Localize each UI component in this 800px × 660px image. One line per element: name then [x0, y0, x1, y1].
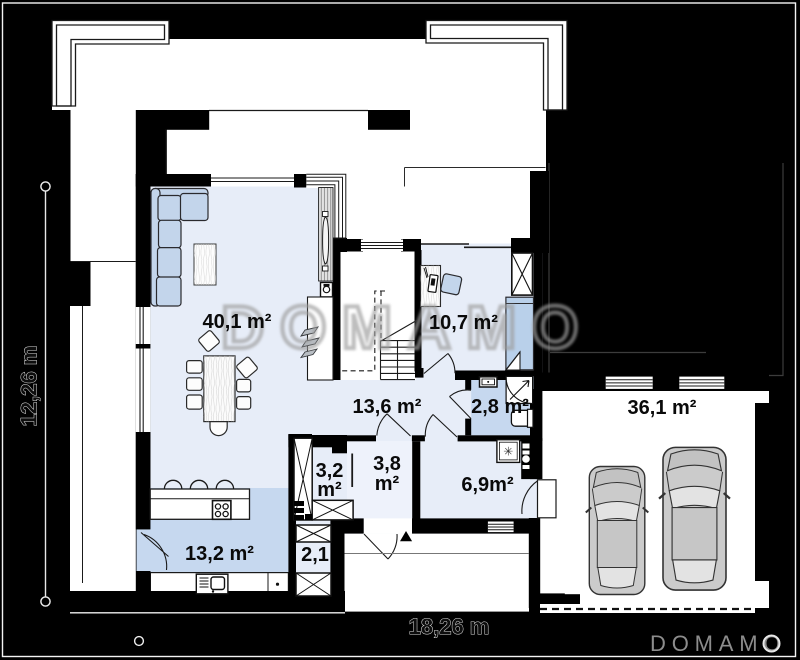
- svg-text:2,1: 2,1: [301, 544, 329, 566]
- svg-text:10,7 m²: 10,7 m²: [429, 312, 498, 334]
- svg-text:36,1 m²: 36,1 m²: [628, 397, 697, 419]
- svg-text:m²: m²: [317, 479, 342, 501]
- svg-text:✳: ✳: [503, 445, 513, 459]
- svg-text:18,26 m: 18,26 m: [409, 614, 490, 639]
- svg-text:3,8: 3,8: [373, 453, 401, 475]
- svg-text:6,9m²: 6,9m²: [461, 474, 514, 496]
- svg-text:DOMAMO: DOMAMO: [221, 294, 594, 361]
- svg-text:40,1 m²: 40,1 m²: [203, 311, 272, 333]
- svg-text:12,26 m: 12,26 m: [17, 346, 42, 427]
- svg-text:m²: m²: [375, 473, 400, 495]
- svg-text:13,6 m²: 13,6 m²: [353, 396, 422, 418]
- svg-text:13,2 m²: 13,2 m²: [185, 543, 254, 565]
- svg-text:2,8 m²: 2,8 m²: [471, 396, 529, 418]
- svg-text:DOMAMO: DOMAMO: [650, 631, 786, 656]
